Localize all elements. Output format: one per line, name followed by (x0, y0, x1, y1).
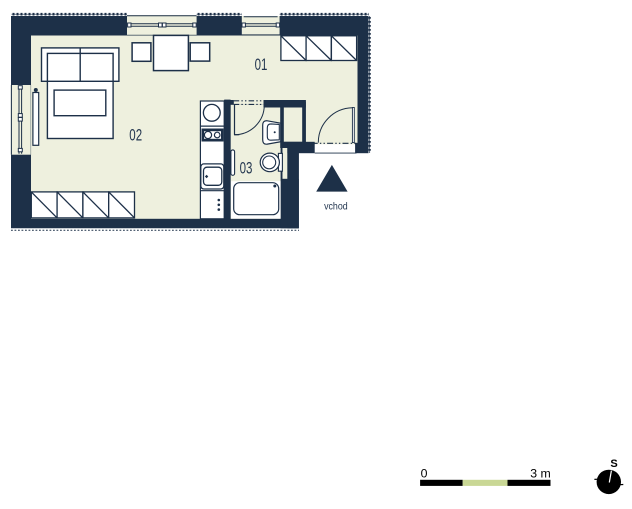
svg-text:02: 02 (129, 127, 142, 145)
svg-text:03: 03 (240, 159, 253, 177)
svg-text:0: 0 (421, 467, 428, 481)
svg-text:01: 01 (255, 56, 268, 74)
svg-text:S: S (610, 458, 617, 470)
svg-text:vchod: vchod (324, 202, 348, 213)
svg-text:3 m: 3 m (530, 467, 551, 481)
